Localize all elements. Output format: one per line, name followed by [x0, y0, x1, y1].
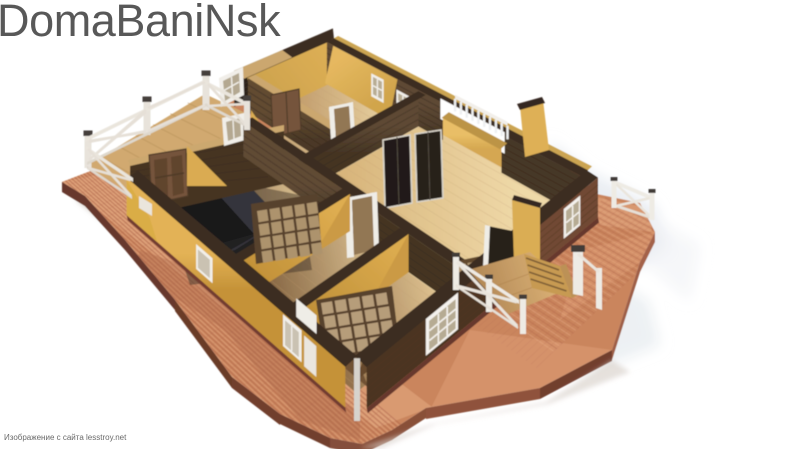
svg-text:DomaBaniNsk: DomaBaniNsk [0, 0, 281, 46]
svg-text:Изображение с сайта lesstroy.n: Изображение с сайта lesstroy.net [4, 433, 127, 442]
